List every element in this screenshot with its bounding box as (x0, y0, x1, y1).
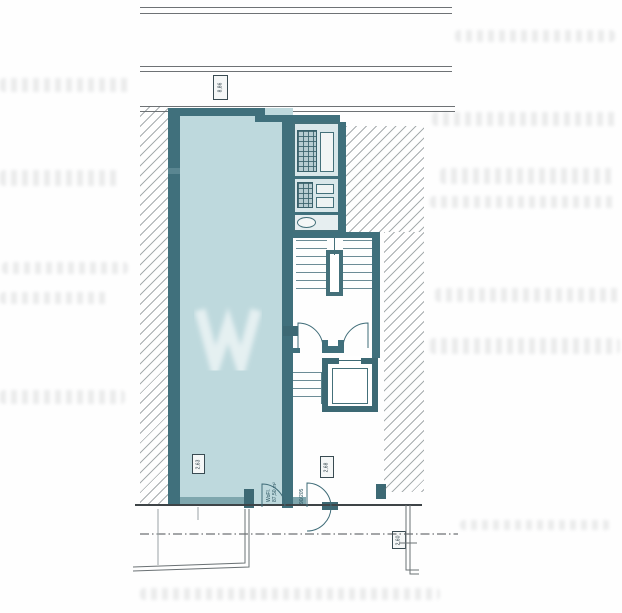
door-swing-landing-right (343, 323, 368, 348)
floor-plan-canvas: 8,86 2,63 2,68 (0, 0, 622, 613)
door-swing-entrance (307, 483, 331, 531)
door-swing-landing-left (298, 323, 323, 348)
boundary-left-inner (133, 509, 249, 571)
boundary-right-inner (410, 505, 419, 574)
door-swing-living (262, 484, 285, 507)
vector-overlay (0, 0, 622, 613)
watermark (200, 310, 256, 365)
boundary-left-outer (133, 509, 245, 567)
boundary-right-outer (406, 505, 419, 570)
